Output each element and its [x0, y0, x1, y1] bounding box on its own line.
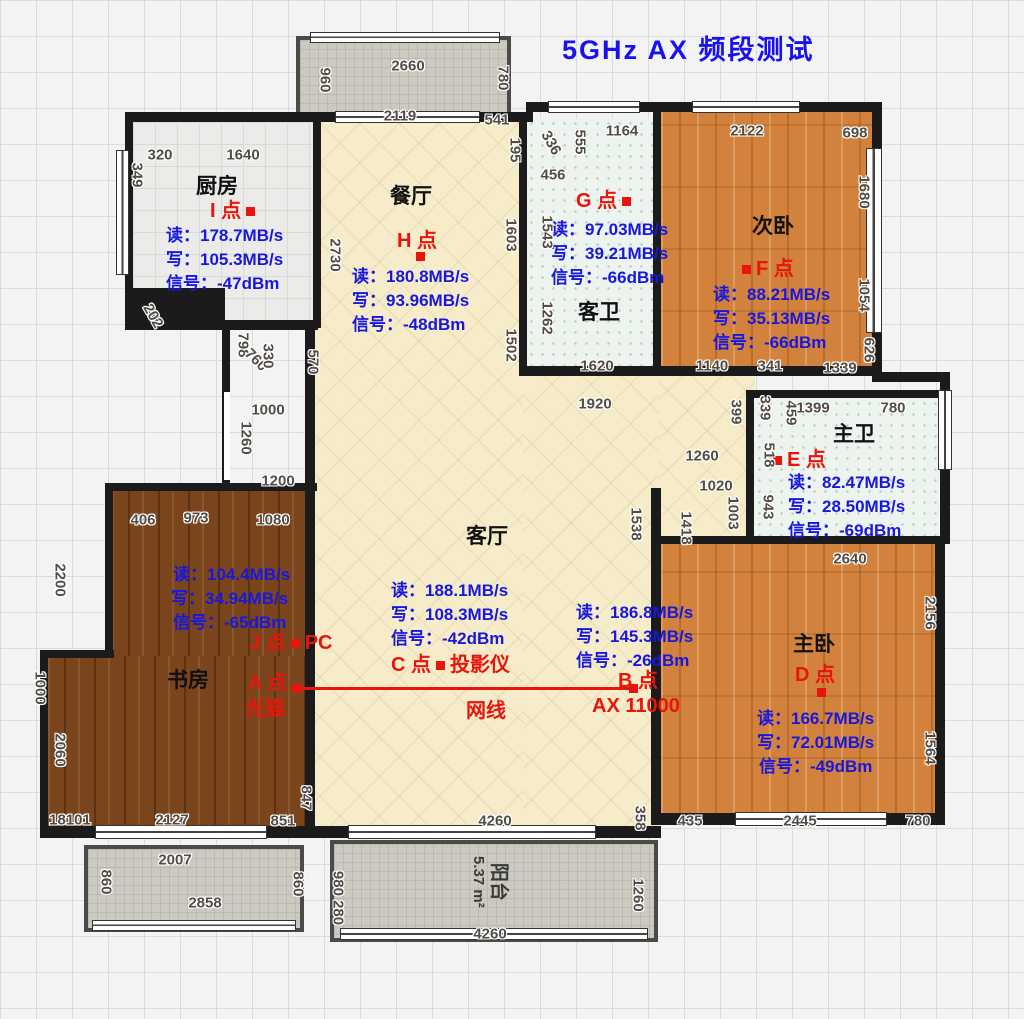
dimension-label: 847: [298, 785, 315, 810]
room-label-master-bedroom: 主卧: [793, 628, 835, 658]
dimension-label: 1538: [628, 507, 645, 540]
dimension-label: 2156: [922, 596, 939, 629]
dimension-label: 2660: [391, 58, 424, 75]
point-G-read: 读：97.03MB/s: [551, 215, 668, 240]
point-H-write: 写：93.96MB/s: [352, 286, 469, 311]
dimension-label: 1418: [678, 511, 695, 544]
dimension-label: 2640: [833, 551, 866, 568]
dimension-label: 1080: [256, 512, 289, 529]
point-E-write: 写：28.50MB/s: [788, 492, 905, 517]
dimension-label: 330: [260, 343, 277, 368]
dimension-label: 1200: [261, 473, 294, 490]
point-C-read: 读：188.1MB/s: [391, 576, 508, 601]
dimension-label: 518: [761, 442, 778, 467]
dimension-label: 2445: [783, 813, 816, 830]
point-D-read: 读：166.7MB/s: [757, 704, 874, 729]
dimension-label: 626: [861, 337, 878, 362]
dimension-label: 780: [495, 65, 512, 90]
dimension-label: 1680: [856, 175, 873, 208]
dimension-label: 1640: [226, 147, 259, 164]
point-D-label: D 点: [795, 658, 835, 687]
point-B-read: 读：186.8MB/s: [576, 598, 693, 623]
window-balcony-left-rail: [92, 920, 296, 931]
dimension-label: 1054: [856, 278, 873, 311]
dimension-label: 320: [147, 147, 172, 164]
window-guest-bath-top: [548, 101, 640, 113]
point-G-write: 写：39.21MB/s: [551, 239, 668, 264]
point-B-write: 写：145.3MB/s: [576, 622, 693, 647]
point-J-write: 写：34.94MB/s: [171, 584, 288, 609]
dimension-label: 1260: [238, 421, 255, 454]
point-A-label: A 点: [248, 666, 287, 695]
dimension-label: 18101: [49, 812, 91, 829]
wall-segment: [305, 328, 315, 838]
point-D-signal: 信号：-49dBm: [759, 752, 872, 777]
wall-segment: [746, 390, 754, 542]
wall-segment: [872, 372, 950, 382]
point-E-read: 读：82.47MB/s: [788, 468, 905, 493]
point-J-label: J 点PC: [249, 626, 332, 655]
dimension-label: 570: [305, 349, 322, 374]
wall-segment: [746, 390, 948, 398]
point-F-marker: [742, 265, 751, 274]
window-balcony-top: [310, 32, 500, 43]
dimension-label: 1564: [922, 731, 939, 764]
point-F-signal: 信号：-66dBm: [713, 328, 826, 353]
dimension-label: 698: [842, 125, 867, 142]
dimension-label: 541: [484, 112, 509, 129]
point-I-write: 写：105.3MB/s: [166, 245, 283, 270]
dimension-label: 780: [905, 813, 930, 830]
room-label-balcony: 阳台 5.37 m²: [468, 856, 508, 908]
dimension-label: 1262: [539, 301, 556, 334]
dimension-label: 860: [98, 869, 115, 894]
dimension-label: 1603: [503, 218, 520, 251]
point-C-label: C 点投影仪: [391, 648, 510, 677]
dimension-label: 195: [507, 137, 524, 162]
window-master-bath-right: [938, 390, 952, 470]
point-C-marker: [436, 661, 445, 670]
dimension-label: 860: [290, 871, 307, 896]
dimension-label: 339: [757, 395, 774, 420]
point-F-write: 写：35.13MB/s: [713, 304, 830, 329]
dimension-label: 1140: [696, 358, 729, 375]
wall-segment: [218, 320, 318, 330]
dimension-label: 2127: [155, 812, 188, 829]
point-E-signal: 信号：-69dBm: [788, 516, 901, 541]
dimension-label: 1543: [539, 215, 556, 248]
point-C-write: 写：108.3MB/s: [391, 600, 508, 625]
dimension-label: 4260: [478, 813, 511, 830]
dimension-label: 780: [880, 400, 905, 417]
dimension-label: 456: [540, 167, 565, 184]
dimension-label: 1260: [685, 448, 718, 465]
point-H-signal: 信号：-48dBm: [352, 310, 465, 335]
room-label-guest-bath: 客卫: [578, 296, 620, 326]
wall-segment: [313, 112, 321, 328]
dimension-label: 2119: [384, 108, 417, 125]
point-A-device: 光猫: [245, 692, 285, 721]
dimension-label: 2730: [327, 238, 344, 271]
floorplan-canvas: 5GHz AX 频段测试 厨房 I 点 读：178.7MB/s 写：105.3M…: [0, 0, 1024, 1019]
room-label-study: 书房: [167, 664, 209, 694]
dimension-label: 1502: [503, 328, 520, 361]
dimension-label: 341: [757, 358, 782, 375]
point-D-write: 写：72.01MB/s: [757, 728, 874, 753]
room-label-second-bedroom: 次卧: [752, 210, 794, 240]
point-B-device: AX 11000: [592, 695, 680, 718]
wall-segment: [105, 483, 113, 658]
wall-segment: [40, 650, 114, 658]
dimension-label: 943: [760, 494, 777, 519]
point-I-signal: 信号：-47dBm: [166, 269, 279, 294]
window-living-balcony-door: [348, 825, 596, 839]
dimension-label: 349: [129, 162, 146, 187]
point-I-label: I 点: [210, 194, 260, 223]
dimension-label: 1399: [796, 400, 829, 417]
point-I-marker: [246, 207, 255, 216]
point-J-marker: [291, 639, 300, 648]
dimension-label: 1164: [606, 123, 639, 140]
point-F-label: F 点: [737, 252, 794, 281]
dimension-label: 1620: [580, 358, 613, 375]
wall-segment: [935, 544, 945, 825]
dimension-label: 1000: [251, 402, 284, 419]
dimension-label: 4260: [473, 926, 506, 943]
point-G-marker: [622, 197, 631, 206]
dimension-label: 399: [728, 399, 745, 424]
page-title: 5GHz AX 频段测试: [562, 28, 815, 67]
dimension-label: 2200: [52, 563, 69, 596]
point-H-read: 读：180.8MB/s: [352, 262, 469, 287]
dimension-label: 358: [632, 805, 649, 830]
dimension-label: 406: [130, 512, 155, 529]
window-kitchen-left: [116, 150, 129, 275]
dimension-label: 960: [317, 67, 334, 92]
point-H-marker: [416, 252, 425, 261]
dimension-label: 2060: [52, 733, 69, 766]
point-C-signal: 信号：-42dBm: [391, 624, 504, 649]
opening-entry-door: [224, 392, 230, 480]
point-F-read: 读：88.21MB/s: [713, 280, 830, 305]
network-cable-label: 网线: [466, 694, 506, 723]
dimension-label: 555: [572, 129, 589, 154]
point-I-read: 读：178.7MB/s: [166, 221, 283, 246]
point-H-label: H 点: [397, 224, 437, 253]
dimension-label: 1920: [578, 396, 611, 413]
dimension-label: 1003: [725, 496, 742, 529]
dimension-label: 2007: [158, 852, 191, 869]
dimension-label: 1000: [32, 671, 49, 704]
room-label-living: 客厅: [466, 520, 508, 550]
room-label-dining: 餐厅: [390, 180, 432, 210]
window-second-bedroom-top: [692, 101, 800, 113]
dimension-label: 435: [677, 813, 702, 830]
dimension-label: 2858: [188, 895, 221, 912]
point-G-signal: 信号：-66dBm: [551, 263, 664, 288]
dimension-label: 2122: [730, 123, 763, 140]
dimension-label: 1020: [699, 478, 732, 495]
balcony-bottom-left: [84, 845, 304, 932]
point-G-label: G 点: [576, 184, 636, 213]
point-D-marker: [817, 688, 826, 697]
point-J-read: 读：104.4MB/s: [173, 560, 290, 585]
dimension-label: 1339: [823, 360, 856, 377]
dimension-label: 851: [270, 813, 295, 830]
network-cable-line: [300, 687, 634, 690]
dimension-label: 973: [183, 510, 208, 527]
room-label-master-bath: 主卫: [833, 418, 875, 448]
dimension-label: 1260: [630, 878, 647, 911]
dimension-label: 980 280: [330, 871, 347, 925]
